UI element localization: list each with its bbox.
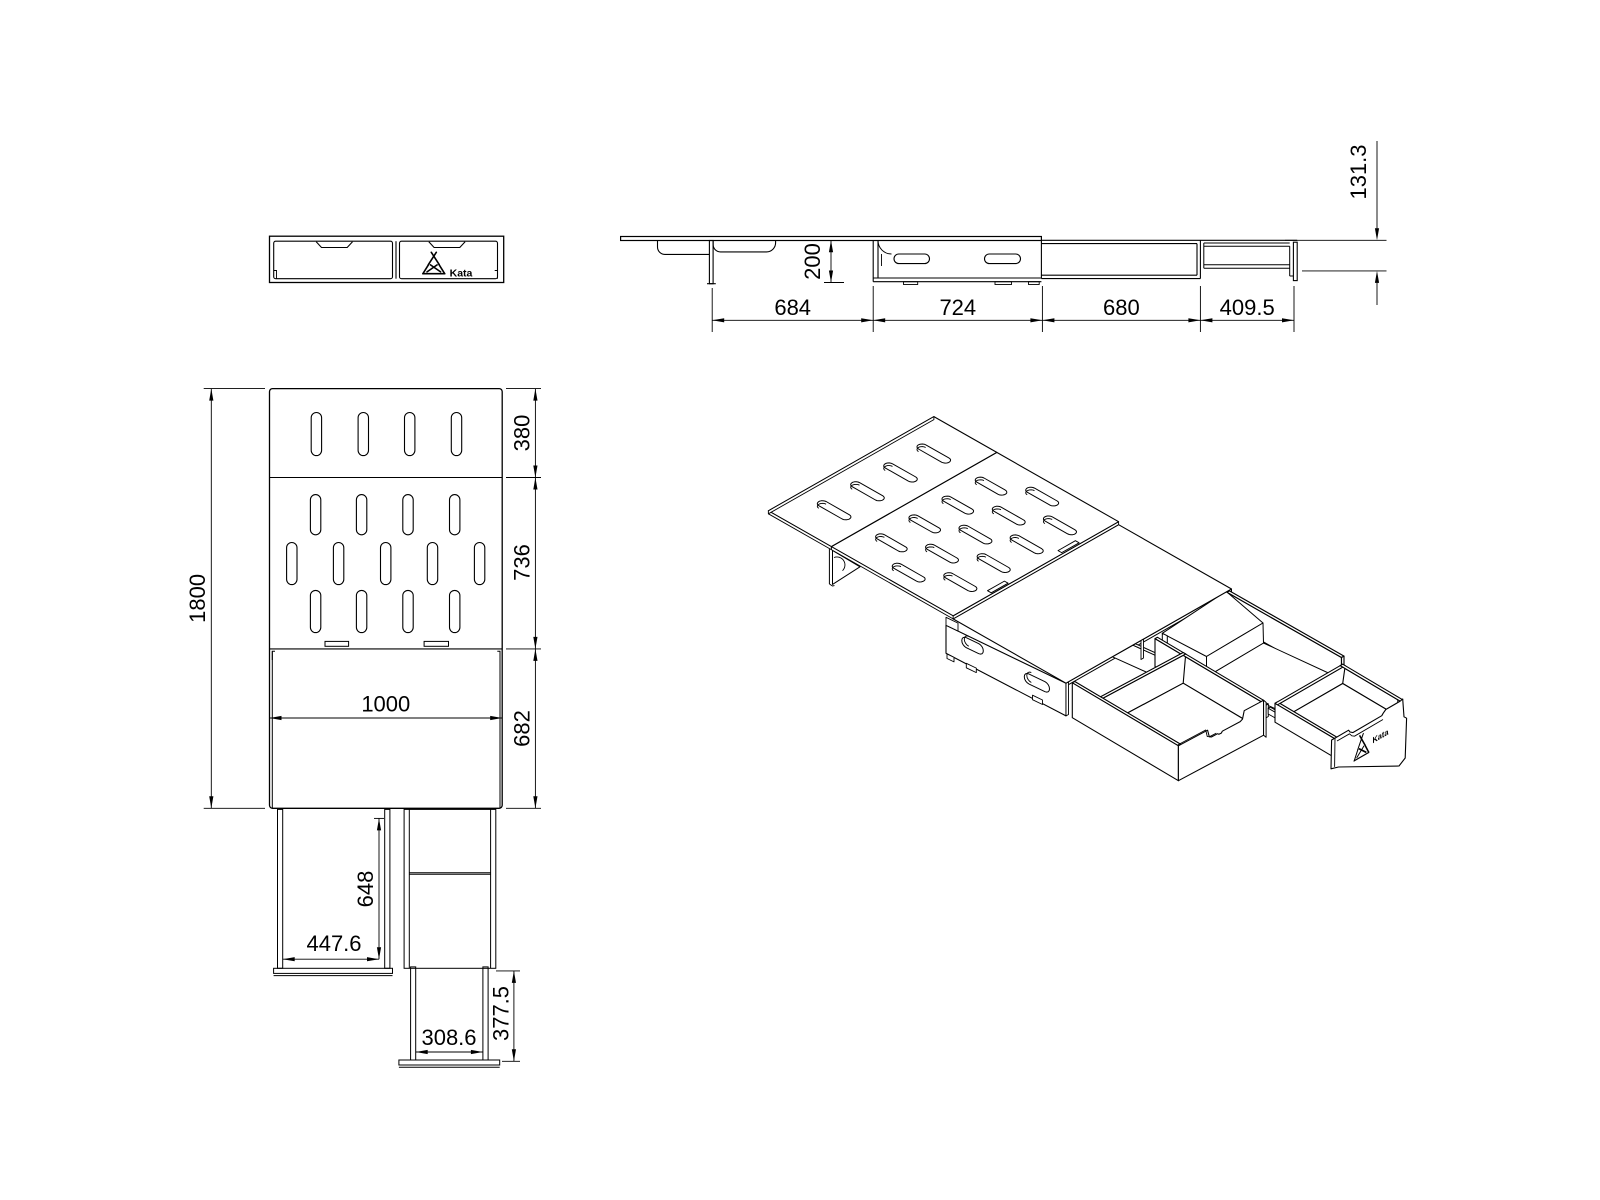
svg-text:724: 724 (939, 295, 976, 320)
svg-text:409.5: 409.5 (1220, 295, 1275, 320)
svg-text:1000: 1000 (361, 692, 410, 717)
svg-text:200: 200 (800, 243, 825, 280)
svg-text:680: 680 (1103, 295, 1140, 320)
svg-text:377.5: 377.5 (489, 986, 514, 1041)
svg-text:447.6: 447.6 (306, 931, 361, 956)
svg-text:736: 736 (510, 544, 535, 581)
svg-text:1800: 1800 (185, 574, 210, 623)
svg-text:Kata: Kata (450, 267, 473, 279)
svg-text:684: 684 (774, 295, 811, 320)
svg-text:308.6: 308.6 (421, 1025, 476, 1050)
svg-text:131.3: 131.3 (1346, 144, 1371, 199)
svg-text:648: 648 (353, 871, 378, 908)
svg-text:682: 682 (510, 710, 535, 747)
svg-text:380: 380 (510, 415, 535, 452)
